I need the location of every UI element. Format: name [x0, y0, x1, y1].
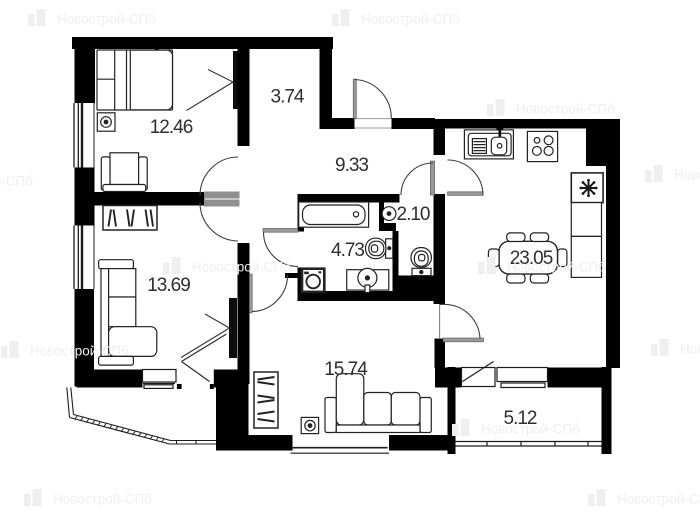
svg-text:15.74: 15.74 [324, 359, 368, 380]
svg-text:Новострой-СПб: Новострой-СПб [30, 344, 129, 359]
svg-text:Новострой-СПб: Новострой-СПб [617, 492, 700, 507]
svg-text:Новострой-СПб: Новострой-СПб [680, 342, 700, 357]
svg-text:Новострой-СПб: Новострой-СПб [481, 422, 580, 437]
svg-text:Новострой-СПб: Новострой-СПб [192, 260, 291, 275]
svg-text:2.10: 2.10 [397, 204, 430, 225]
svg-text:Новострой-СПб: Новострой-СПб [507, 260, 606, 275]
svg-text:Новострой-СПб: Новострой-СПб [516, 102, 615, 117]
svg-text:4.73: 4.73 [331, 240, 364, 261]
svg-text:Новострой-СПб: Новострой-СПб [0, 174, 33, 189]
svg-text:12.46: 12.46 [150, 117, 193, 138]
svg-text:Новострой-СПб: Новострой-СПб [674, 168, 700, 183]
svg-text:Новострой-СПб: Новострой-СПб [361, 12, 460, 27]
svg-text:Новострой-СПб: Новострой-СПб [57, 12, 156, 27]
svg-text:13.69: 13.69 [147, 275, 190, 296]
svg-text:3.74: 3.74 [271, 87, 305, 108]
svg-text:Новострой-СПб: Новострой-СПб [53, 492, 152, 507]
svg-text:9.33: 9.33 [335, 155, 368, 176]
